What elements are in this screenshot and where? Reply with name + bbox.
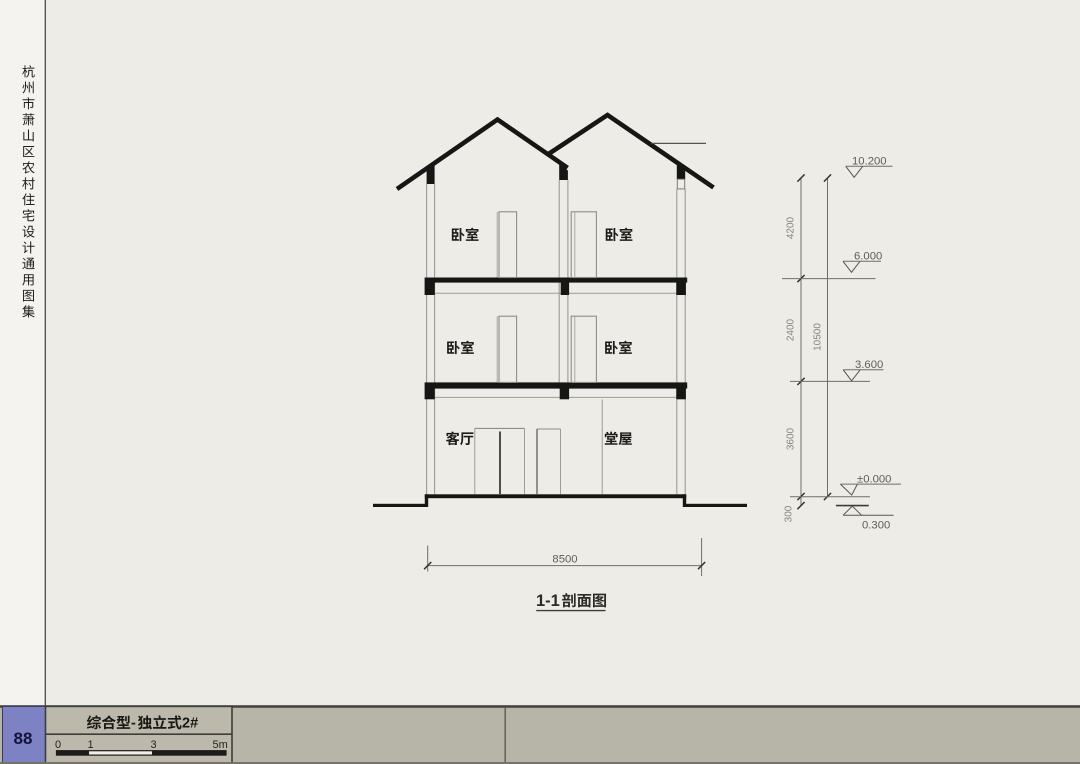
svg-text:3: 3 xyxy=(151,739,157,751)
svg-text:5m: 5m xyxy=(213,739,228,751)
svg-text:1-1: 1-1 xyxy=(536,592,560,610)
svg-text:8500: 8500 xyxy=(552,554,577,566)
svg-text:4200: 4200 xyxy=(786,216,797,239)
svg-text:10.200: 10.200 xyxy=(852,156,887,168)
svg-text:2#: 2# xyxy=(182,716,198,732)
svg-text:0: 0 xyxy=(55,739,61,751)
svg-text:10500: 10500 xyxy=(813,323,824,351)
svg-text:1: 1 xyxy=(88,739,94,751)
svg-text:88: 88 xyxy=(14,729,33,748)
svg-text:0.300: 0.300 xyxy=(862,520,890,532)
svg-text:-: - xyxy=(131,716,136,732)
svg-text:2400: 2400 xyxy=(786,318,797,341)
svg-text:3600: 3600 xyxy=(786,427,797,450)
svg-text:±0.000: ±0.000 xyxy=(857,474,891,486)
svg-text:6.000: 6.000 xyxy=(854,251,882,263)
svg-text:3.600: 3.600 xyxy=(855,359,883,371)
svg-text:300: 300 xyxy=(784,505,795,522)
